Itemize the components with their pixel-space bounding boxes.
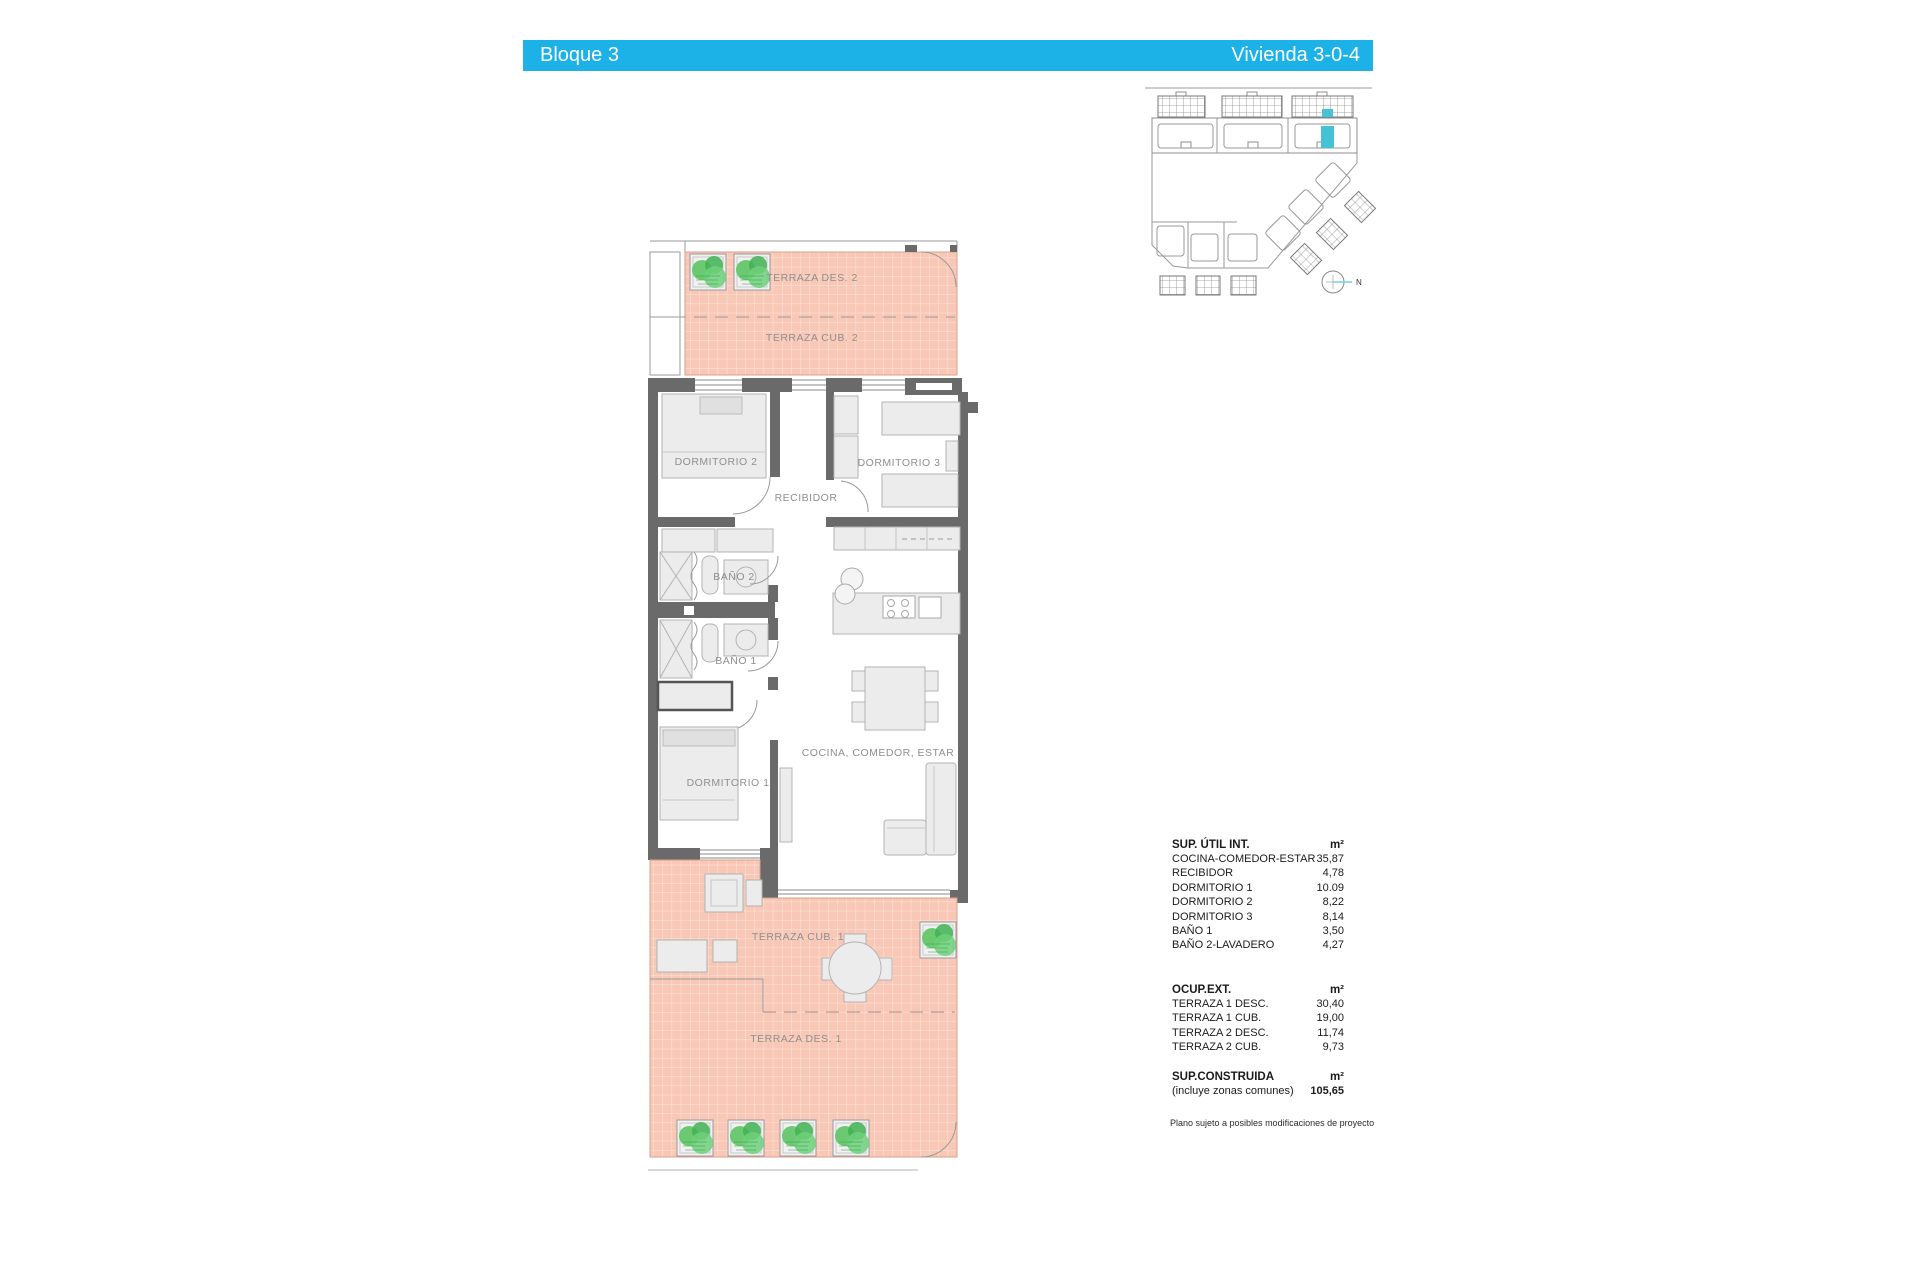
shelf: [780, 768, 792, 842]
disclaimer-note: Plano sujeto a posibles modificaciones d…: [1170, 1118, 1420, 1128]
table-header: SUP. ÚTIL INT. m²: [1172, 838, 1344, 852]
washbasin: [724, 624, 768, 656]
dormitorio-3-room: DORMITORIO 3: [834, 396, 960, 512]
table-row: COCINA-COMEDOR-ESTAR35,87: [1172, 852, 1344, 866]
table-row: DORMITORIO 110.09: [1172, 881, 1344, 895]
kitchen-counter: [833, 568, 960, 634]
shower: [660, 552, 697, 600]
dorm2-door-arc: [733, 477, 770, 514]
pillow: [700, 397, 742, 414]
room-label-terraza-cub-2: TERRAZA CUB. 2: [766, 332, 858, 344]
dorm3-door-arc: [841, 481, 868, 512]
window-top-1: [695, 379, 742, 391]
sofa: [884, 763, 956, 855]
roof-strips: [1158, 92, 1353, 117]
table-row: RECIBIDOR4,78: [1172, 866, 1344, 880]
nightstand: [946, 441, 958, 471]
single-bed: [882, 474, 958, 507]
terrace-1-floor: [650, 860, 957, 1157]
unit-label: m²: [1330, 1070, 1344, 1084]
table-body: COCINA-COMEDOR-ESTAR35,87RECIBIDOR4,78DO…: [1172, 852, 1344, 953]
double-bed: [660, 727, 738, 820]
built-surface-table: SUP.CONSTRUIDA m² (incluye zonas comunes…: [1172, 1070, 1344, 1098]
unit-label: m²: [1330, 838, 1344, 852]
window-top-2: [792, 379, 826, 391]
highlight-dwelling: [1321, 126, 1334, 148]
hall-closet: [662, 529, 715, 552]
oven: [919, 597, 941, 618]
table-row: DORMITORIO 28,22: [1172, 895, 1344, 909]
tilted-roof-squares: [1290, 191, 1375, 274]
lounger: [713, 940, 737, 962]
bottom-houses: [1157, 226, 1257, 261]
kitchen-living-room: COCINA, COMEDOR, ESTAR: [802, 527, 960, 855]
table-header: SUP.CONSTRUIDA m²: [1172, 1070, 1344, 1084]
exterior-surface-table: OCUP.EXT. m² TERRAZA 1 DESC.30,40TERRAZA…: [1172, 983, 1344, 1055]
north-arrow: N: [1322, 271, 1362, 293]
unit-title: Vivienda 3-0-4: [1231, 44, 1360, 67]
table-row: TERRAZA 1 DESC.30,40: [1172, 997, 1344, 1011]
table-title: OCUP.EXT.: [1172, 983, 1231, 997]
window-top-3: [862, 379, 905, 391]
plan-sheet: Bloque 3 Vivienda 3-0-4: [0, 0, 1920, 1280]
highlight-roof-cell: [1322, 109, 1333, 117]
table-row: TERRAZA 2 CUB.9,73: [1172, 1040, 1344, 1054]
kitchen-cabinets: [834, 527, 960, 550]
terrace-armchair: [705, 874, 743, 912]
wardrobe: [658, 682, 732, 710]
dining-table: [852, 667, 938, 730]
bottom-roof-squares: [1160, 276, 1256, 295]
table-row: BAÑO 2-LAVADERO4,27: [1172, 938, 1344, 952]
room-label-dormitorio-2: DORMITORIO 2: [675, 456, 758, 468]
table-title: SUP.CONSTRUIDA: [1172, 1070, 1274, 1084]
room-label-dormitorio-3: DORMITORIO 3: [858, 457, 941, 469]
unit-label: m²: [1330, 983, 1344, 997]
bano-2-room: BAÑO 2: [660, 552, 778, 600]
side-strip: [650, 252, 680, 375]
table-row: TERRAZA 1 CUB.19,00: [1172, 1011, 1344, 1025]
side-table: [746, 880, 762, 906]
terrace-1: TERRAZA CUB. 1 TERRAZA DES. 1: [648, 860, 957, 1170]
wardrobe: [834, 436, 858, 478]
block-row: [1152, 118, 1357, 153]
table-row: (incluye zonas comunes) 105,65: [1172, 1084, 1344, 1098]
terrace-2: TERRAZA DES. 2 TERRAZA CUB. 2: [650, 241, 957, 375]
wardrobe: [834, 396, 858, 434]
dormitorio-2-room: DORMITORIO 2: [662, 394, 770, 514]
room-label-recibidor: RECIBIDOR: [775, 492, 838, 504]
room-label-bano-2: BAÑO 2: [713, 570, 755, 583]
plot-boundary: [1152, 153, 1357, 268]
table-row: TERRAZA 2 DESC.11,74: [1172, 1026, 1344, 1040]
single-bed: [882, 402, 960, 435]
interior-surface-table: SUP. ÚTIL INT. m² COCINA-COMEDOR-ESTAR35…: [1172, 838, 1344, 953]
note-label: (incluye zonas comunes): [1172, 1084, 1294, 1098]
title-bar: Bloque 3 Vivienda 3-0-4: [523, 40, 1373, 71]
bano-1-room: BAÑO 1: [660, 620, 778, 678]
room-label-cocina: COCINA, COMEDOR, ESTAR: [802, 747, 955, 759]
room-label-terraza-des-2: TERRAZA DES. 2: [766, 272, 858, 284]
table-row: BAÑO 13,50: [1172, 924, 1344, 938]
table-title: SUP. ÚTIL INT.: [1172, 838, 1250, 852]
north-label: N: [1356, 278, 1362, 287]
window-dorm1: [700, 849, 760, 859]
lounger: [657, 940, 707, 972]
floor-plan: TERRAZA DES. 2 TERRAZA CUB. 2: [640, 236, 980, 1180]
room-label-dormitorio-1: DORMITORIO 1: [687, 777, 770, 789]
site-plan: N: [1140, 84, 1440, 309]
stove: [883, 596, 915, 618]
room-label-bano-1: BAÑO 1: [715, 654, 757, 667]
table-row: DORMITORIO 38,14: [1172, 910, 1344, 924]
table-body: TERRAZA 1 DESC.30,40TERRAZA 1 CUB.19,00T…: [1172, 997, 1344, 1055]
total-value: 105,65: [1310, 1084, 1344, 1098]
block-title: Bloque 3: [540, 44, 619, 67]
room-label-terraza-cub-1: TERRAZA CUB. 1: [752, 931, 844, 943]
room-label-terraza-des-1: TERRAZA DES. 1: [750, 1033, 842, 1045]
hall-closet: [717, 529, 773, 552]
table-header: OCUP.EXT. m²: [1172, 983, 1344, 997]
shower: [660, 620, 697, 678]
